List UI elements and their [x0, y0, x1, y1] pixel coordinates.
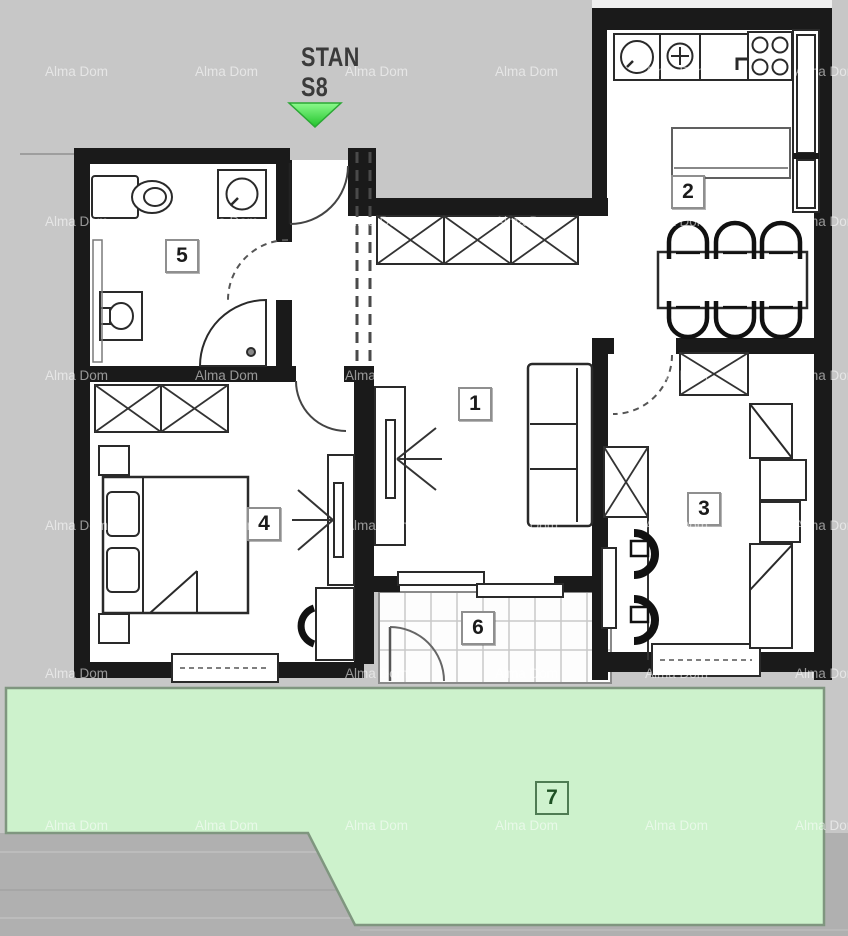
watermark: Alma Dom [645, 818, 708, 833]
watermark: Alma Dom [345, 818, 408, 833]
chair-seat [631, 541, 648, 556]
watermark: Alma Dom [645, 214, 708, 229]
kitchen-island [672, 128, 790, 178]
watermark: Alma Dom [45, 818, 108, 833]
watermark: Alma Dom [495, 214, 558, 229]
tv [386, 420, 395, 498]
watermark: Alma Dom [45, 64, 108, 79]
watermark: Alma Dom [345, 214, 408, 229]
watermark: Alma Dom [45, 214, 108, 229]
watermark: Alma Dom [45, 368, 108, 383]
single-bed [750, 544, 792, 648]
watermark: Alma Dom [795, 214, 848, 229]
room-label-7: 7 [535, 781, 569, 815]
dining-table [658, 252, 807, 308]
pillow [107, 492, 139, 536]
watermark: Alma Dom [795, 64, 848, 79]
floor-plan: STAN S8 1 2 3 4 5 6 7 Alma DomAlma DomAl… [0, 0, 848, 936]
watermark: Alma Dom [345, 518, 408, 533]
watermark: Alma Dom [45, 518, 108, 533]
nightstand [99, 614, 129, 643]
watermark: Alma Dom [195, 214, 258, 229]
room-label-6: 6 [461, 611, 495, 645]
nightstand [99, 446, 129, 475]
room-label-5: 5 [165, 239, 199, 273]
pillow [107, 548, 139, 592]
watermark: Alma Dom [495, 368, 558, 383]
watermark: Alma Dom [495, 818, 558, 833]
watermark: Alma Dom [645, 368, 708, 383]
watermark: Alma Dom [195, 518, 258, 533]
watermark: Alma Dom [195, 368, 258, 383]
tv [334, 483, 343, 557]
watermark: Alma Dom [345, 368, 408, 383]
watermark: Alma Dom [195, 818, 258, 833]
room-label-1: 1 [458, 387, 492, 421]
watermark: Alma Dom [495, 666, 558, 681]
nightstand [760, 460, 806, 500]
sliding-door-panel [398, 572, 484, 585]
watermark: Alma Dom [195, 666, 258, 681]
floor-plan-drawing [0, 0, 848, 936]
room-label-2: 2 [671, 175, 705, 209]
watermark: Alma Dom [195, 64, 258, 79]
watermark: Alma Dom [795, 518, 848, 533]
watermark: Alma Dom [45, 666, 108, 681]
watermark: Alma Dom [795, 666, 848, 681]
watermark: Alma Dom [345, 666, 408, 681]
sliding-door-panel [477, 584, 563, 597]
watermark: Alma Dom [345, 64, 408, 79]
nightstand [760, 502, 800, 542]
chair-seat [631, 607, 648, 622]
watermark: Alma Dom [795, 818, 848, 833]
watermark: Alma Dom [495, 64, 558, 79]
watermark: Alma Dom [495, 518, 558, 533]
desk [316, 588, 354, 660]
desk [602, 548, 616, 628]
sofa [528, 364, 592, 526]
watermark: Alma Dom [645, 64, 708, 79]
watermark: Alma Dom [645, 666, 708, 681]
watermark: Alma Dom [795, 368, 848, 383]
watermark: Alma Dom [645, 518, 708, 533]
